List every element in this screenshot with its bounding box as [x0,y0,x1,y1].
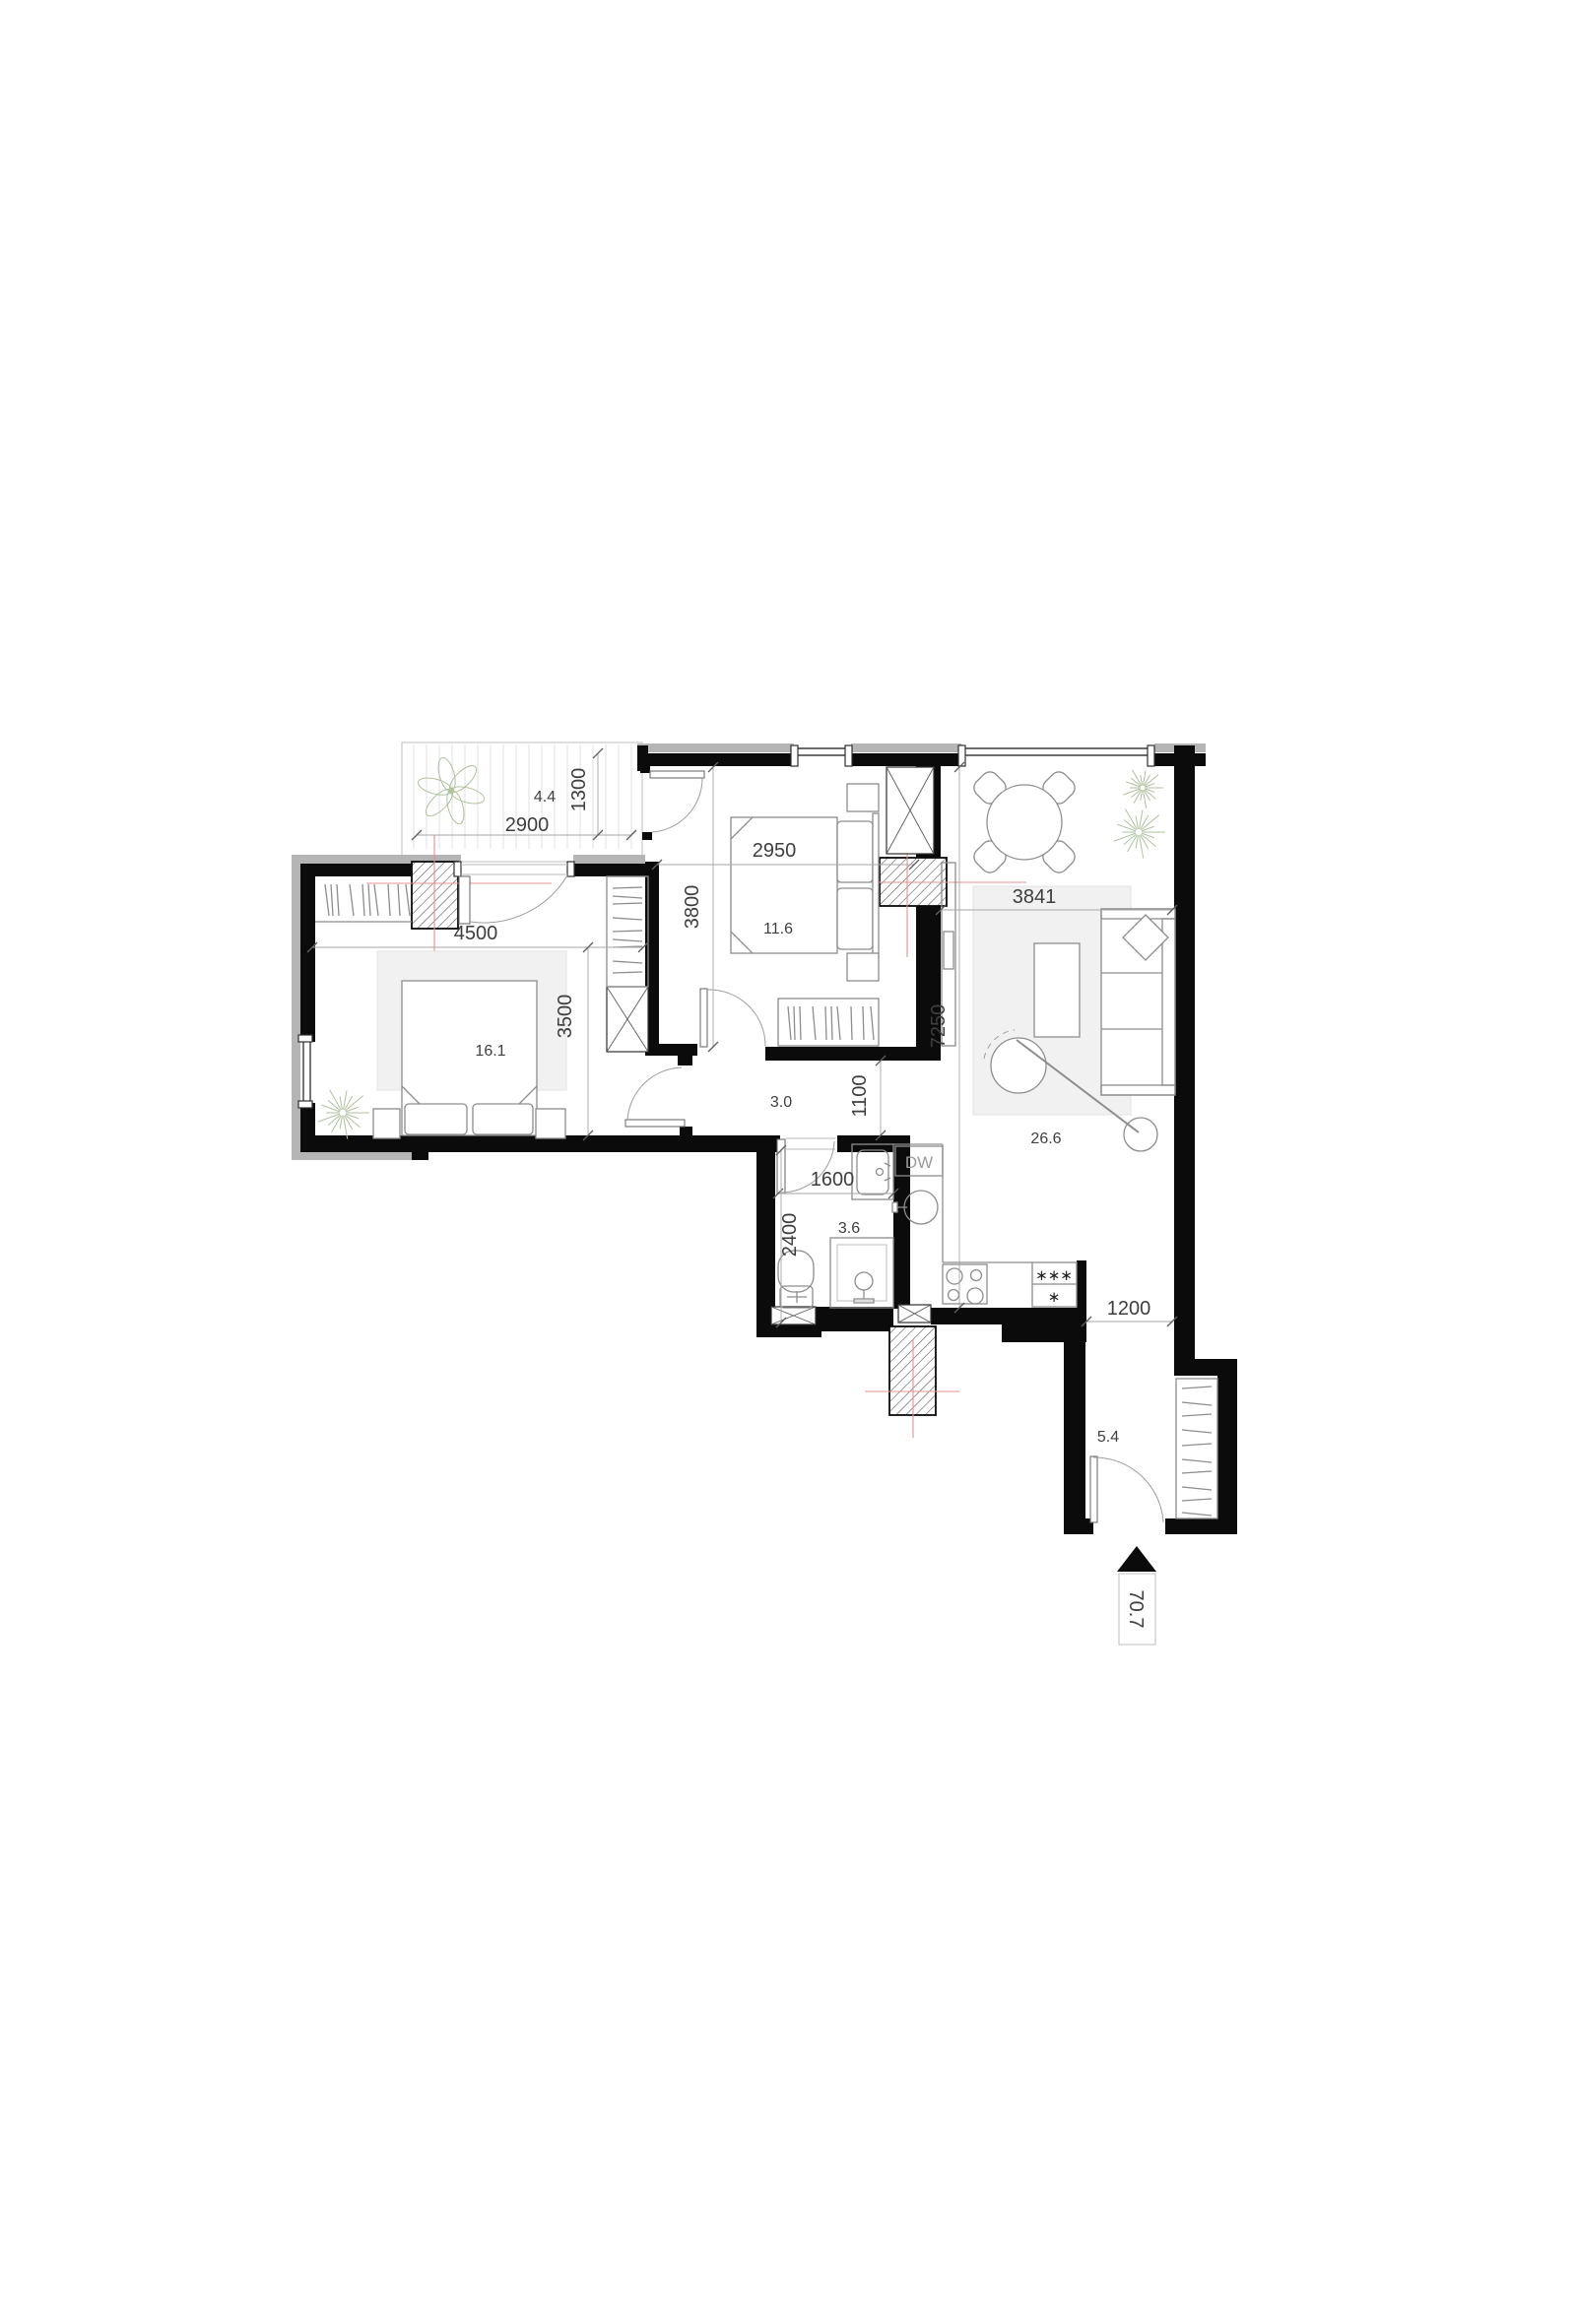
dimension-label-entry_passage: 1200 [1107,1298,1151,1320]
sofa [1101,909,1175,1095]
dishwasher-label: DW [905,1153,933,1172]
dimension-label-living_width: 3841 [1013,886,1057,908]
wardrobe-hangers [788,1006,874,1040]
shaft-icon [607,987,648,1052]
dimension-label-living_depth: 7250 [928,1004,950,1049]
headboard [873,813,879,957]
dimension-label-bedroom2_depth: 3800 [682,885,703,930]
wardrobe-shelves [1182,1387,1212,1516]
pillow [473,1104,533,1134]
dimension-label-bathroom_depth: 2400 [779,1213,801,1258]
bedroom2-door [700,989,765,1047]
bedroom2-area-label: 11.6 [763,921,793,937]
floor-plan: ∗∗∗ ∗ DW 70.7 2900 [0,0,1576,2324]
kitchen: ∗∗∗ ∗ DW [892,1144,1077,1307]
dimension-label-bedroom2_width: 2950 [753,840,797,862]
total-area-label: 70.7 [1125,1590,1147,1629]
shower [830,1238,893,1308]
terrace-area-label: 4.4 [534,789,556,806]
dining-set [970,768,1079,876]
shaft-icon [898,1305,931,1323]
entry-wardrobe [1176,1379,1217,1518]
coffee-table [1034,943,1080,1037]
entrance-door [1090,1456,1163,1522]
plant-icon [1123,770,1163,808]
pillow [837,888,873,949]
dimension-label-bathroom_width: 1600 [811,1169,855,1191]
dimension-label-hall_depth: 1100 [849,1074,871,1117]
dimension-label-terrace_depth: 1300 [568,768,590,812]
toilet [778,1251,814,1308]
hall-area-label: 3.0 [770,1094,792,1111]
bedroom1-furniture [315,876,648,1139]
bathroom-area-label: 3.6 [838,1220,860,1237]
entrance-marker-icon [1117,1546,1156,1572]
fridge-star: ∗ [1048,1289,1061,1306]
terrace-door [459,875,567,924]
entry-area-label: 5.4 [1097,1429,1119,1446]
terrace [402,742,642,862]
living-area-label: 26.6 [1030,1130,1061,1147]
nightstand [373,1109,400,1138]
dining-table [987,785,1062,860]
pillow [837,821,873,882]
nightstand [536,1109,565,1138]
nightstand [847,953,879,981]
plant-icon [318,1090,369,1139]
dimension-label-bedroom1_depth: 3500 [555,995,576,1039]
shaft-icon [886,767,934,854]
bedroom1-area-label: 16.1 [475,1043,505,1060]
nightstand [847,784,879,811]
fridge: ∗∗∗ ∗ [1032,1262,1077,1307]
wardrobe-hangers [325,884,410,916]
washbasin [852,1144,893,1199]
entry-area: 70.7 [1117,1379,1217,1645]
dimension-label-terrace_width: 2900 [505,814,550,836]
freezer-stars: ∗∗∗ [1035,1267,1073,1284]
bedroom1-door [625,1067,685,1127]
bedroom2-terrace-door [650,771,704,832]
bedroom2-furniture [731,784,879,1046]
stove [943,1264,987,1304]
pillow [405,1104,467,1134]
wardrobe-shelves [613,887,642,973]
floor-plan-canvas: ∗∗∗ ∗ DW 70.7 2900 [0,0,1576,2324]
shaft-icon [771,1307,816,1324]
living-furniture [942,768,1175,1151]
dimension-label-bedroom1_width: 4500 [454,923,498,944]
plant-icon [1114,809,1165,859]
